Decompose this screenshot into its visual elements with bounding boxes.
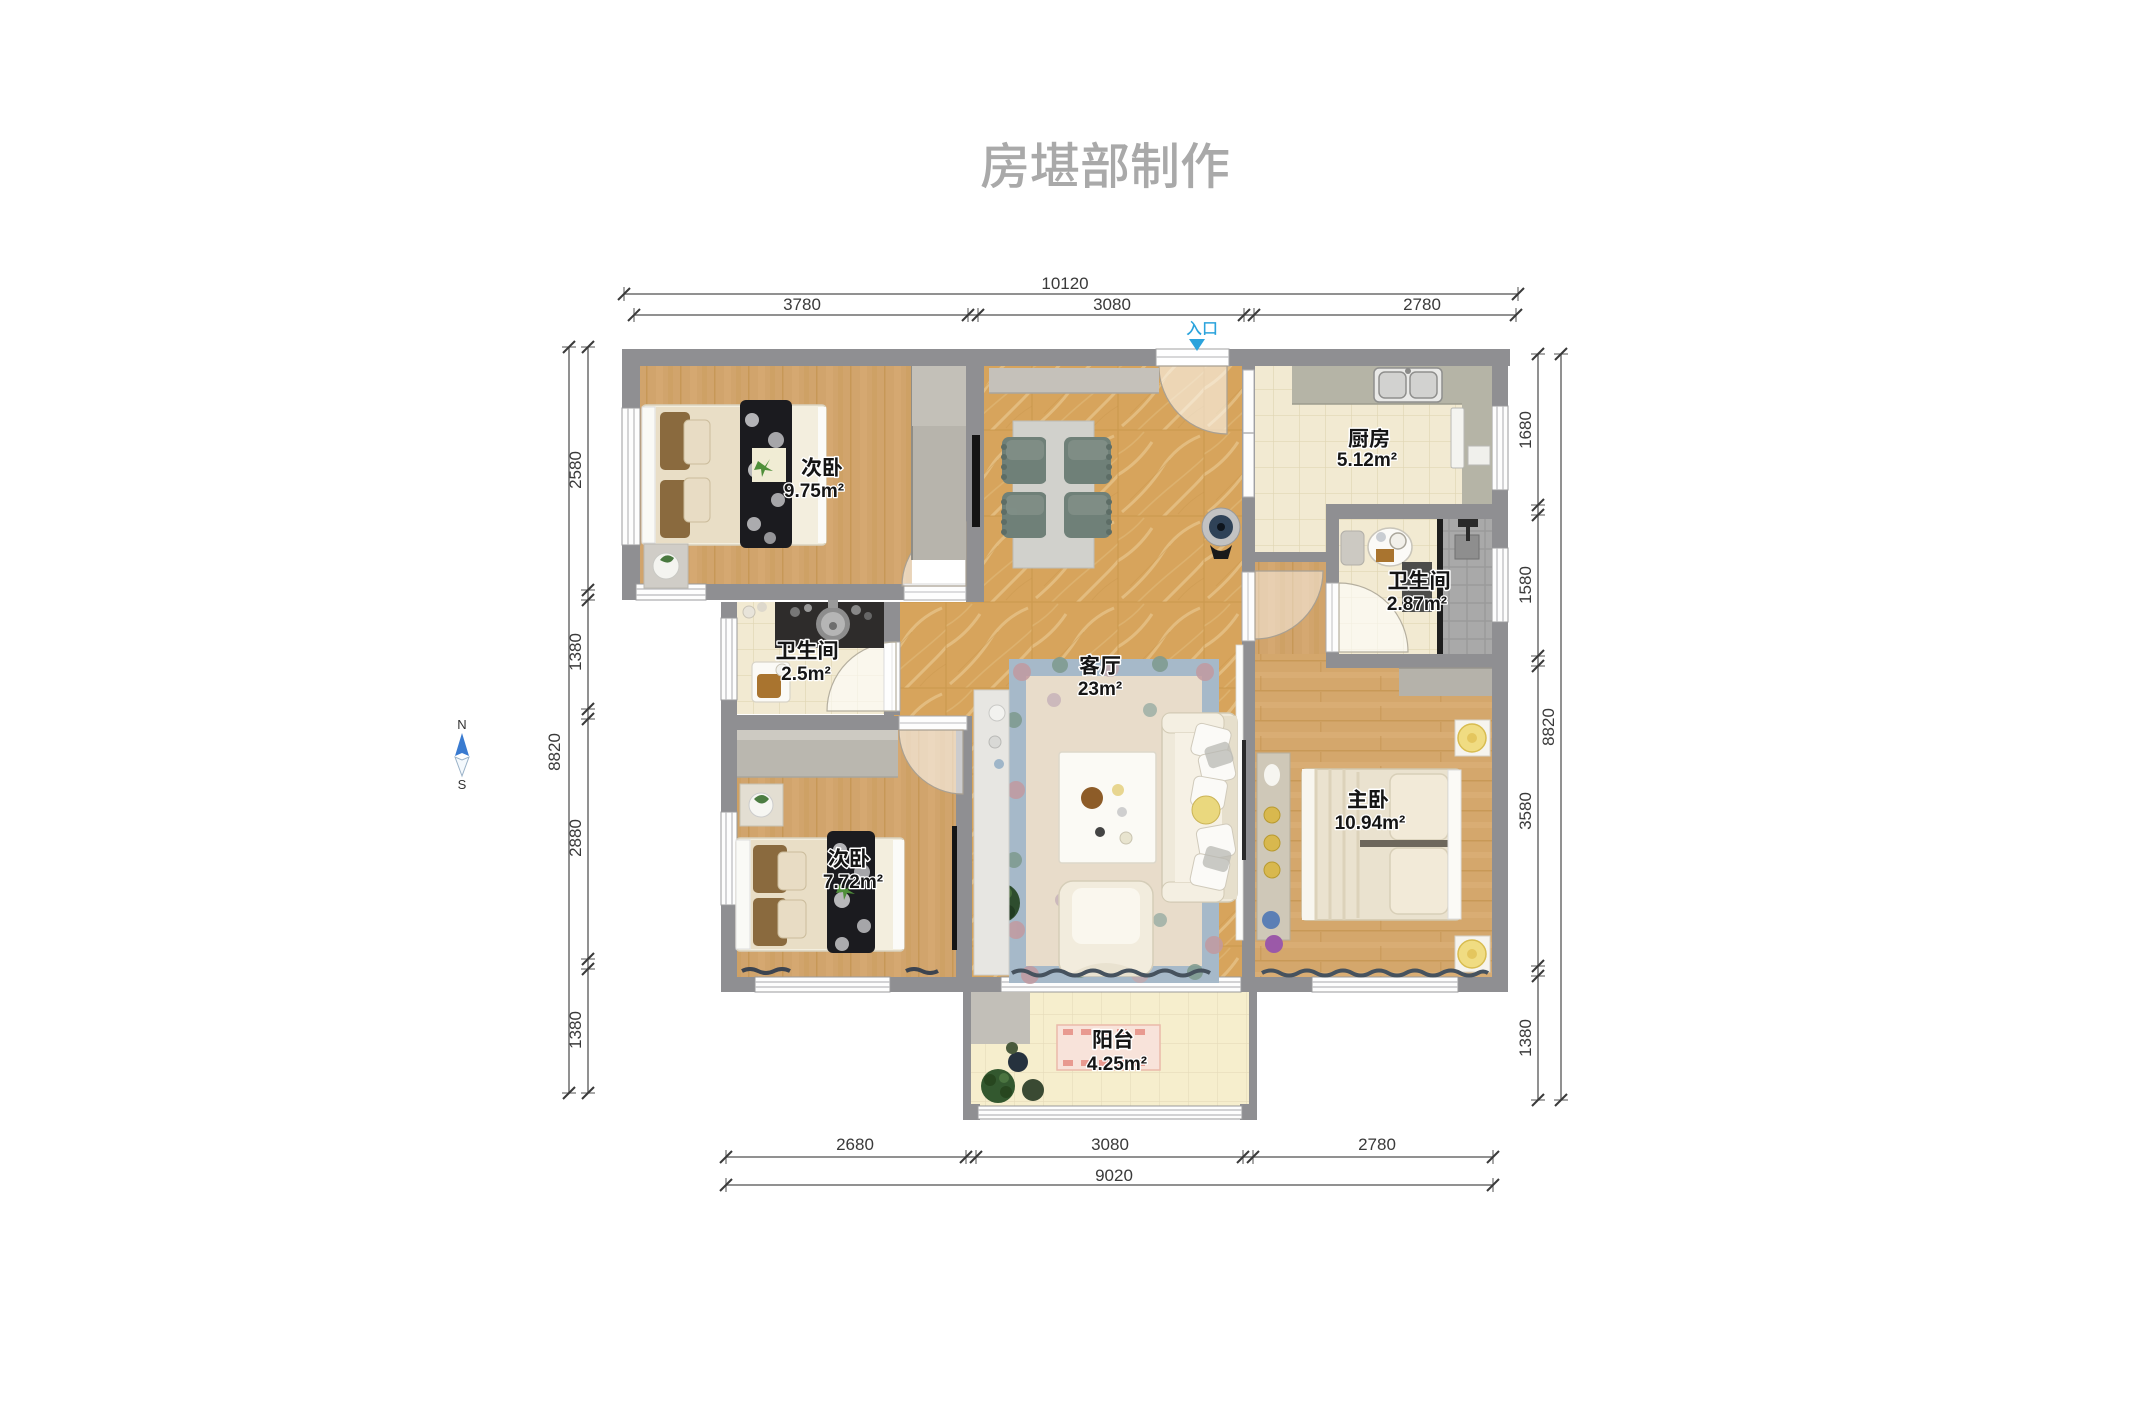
svg-text:2.87m²: 2.87m² <box>1387 594 1447 615</box>
svg-text:2.5m²: 2.5m² <box>781 664 831 685</box>
svg-text:3580: 3580 <box>1516 792 1535 830</box>
svg-text:5.12m²: 5.12m² <box>1337 450 1397 471</box>
svg-text:2580: 2580 <box>566 451 585 489</box>
svg-text:1580: 1580 <box>1516 566 1535 604</box>
svg-text:3080: 3080 <box>1093 295 1131 314</box>
svg-text:1680: 1680 <box>1516 411 1535 449</box>
svg-text:2880: 2880 <box>566 819 585 857</box>
svg-text:8820: 8820 <box>545 733 564 771</box>
svg-text:9.75m²: 9.75m² <box>784 481 844 502</box>
svg-text:2680: 2680 <box>836 1135 874 1154</box>
svg-text:10120: 10120 <box>1041 274 1088 293</box>
svg-text:2780: 2780 <box>1358 1135 1396 1154</box>
svg-text:S: S <box>458 777 467 792</box>
svg-text:2780: 2780 <box>1403 295 1441 314</box>
svg-text:9020: 9020 <box>1095 1166 1133 1185</box>
svg-text:1380: 1380 <box>566 633 585 671</box>
svg-text:1380: 1380 <box>1516 1019 1535 1057</box>
svg-text:10.94m²: 10.94m² <box>1335 813 1406 834</box>
svg-text:23m²: 23m² <box>1078 679 1122 700</box>
svg-text:8820: 8820 <box>1539 708 1558 746</box>
svg-text:1380: 1380 <box>566 1011 585 1049</box>
svg-text:4.25m²: 4.25m² <box>1087 1054 1147 1075</box>
svg-text:3080: 3080 <box>1091 1135 1129 1154</box>
svg-text:3780: 3780 <box>783 295 821 314</box>
svg-text:N: N <box>457 717 466 732</box>
svg-text:7.72m²: 7.72m² <box>823 872 883 893</box>
